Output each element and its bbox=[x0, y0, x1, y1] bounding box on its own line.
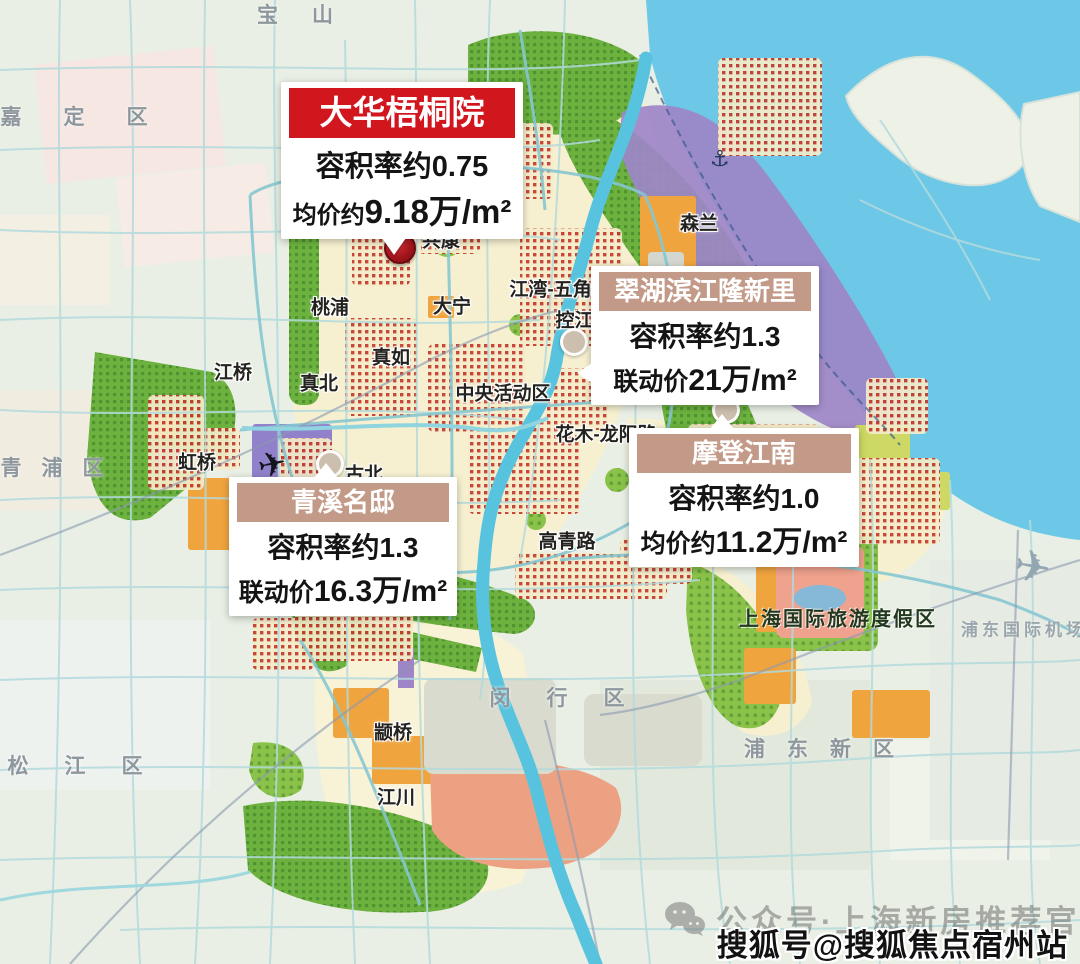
callout-qingxi-mingdi: 青溪名邸 容积率约1.3 联动价16.3万/m² bbox=[229, 477, 457, 616]
sohu-watermark: 搜狐号@搜狐焦点宿州站 bbox=[717, 920, 1068, 964]
callout-title: 翠湖滨江隆新里 bbox=[599, 272, 811, 311]
cuihu-location-pin-icon bbox=[560, 328, 588, 356]
shanghai-planning-map-screenshot: 宝山嘉定区青浦区松江区闵行区浦东新区共康桃浦大宁江湾-五角场控江路真如真北江桥虹… bbox=[0, 0, 1080, 964]
callout-pointer bbox=[314, 463, 338, 478]
planning-map bbox=[0, 0, 1080, 964]
callout-modeng-jiangnan: 摩登江南 容积率约1.0 均价约11.2万/m² bbox=[629, 428, 859, 567]
wechat-icon bbox=[664, 901, 706, 937]
callout-plot-ratio: 容积率约1.3 bbox=[599, 315, 811, 355]
callout-plot-ratio: 容积率约0.75 bbox=[289, 143, 515, 185]
callout-plot-ratio: 容积率约1.0 bbox=[637, 477, 851, 517]
callout-price: 均价约11.2万/m² bbox=[637, 517, 851, 561]
callout-price: 联动价16.3万/m² bbox=[237, 566, 449, 610]
callout-title: 大华梧桐院 bbox=[289, 88, 515, 138]
callout-price: 联动价21万/m² bbox=[599, 355, 811, 399]
callout-pointer bbox=[382, 238, 406, 255]
callout-cuihu-binjiang: 翠湖滨江隆新里 容积率约1.3 联动价21万/m² bbox=[591, 266, 819, 405]
callout-dahua-wutongyuan: 大华梧桐院 容积率约0.75 均价约9.18万/m² bbox=[281, 82, 523, 239]
callout-pointer bbox=[710, 414, 734, 429]
callout-pointer bbox=[577, 363, 592, 383]
callout-title: 青溪名邸 bbox=[237, 483, 449, 522]
callout-title: 摩登江南 bbox=[637, 434, 851, 473]
callout-plot-ratio: 容积率约1.3 bbox=[237, 526, 449, 566]
callout-price: 均价约9.18万/m² bbox=[289, 185, 515, 233]
